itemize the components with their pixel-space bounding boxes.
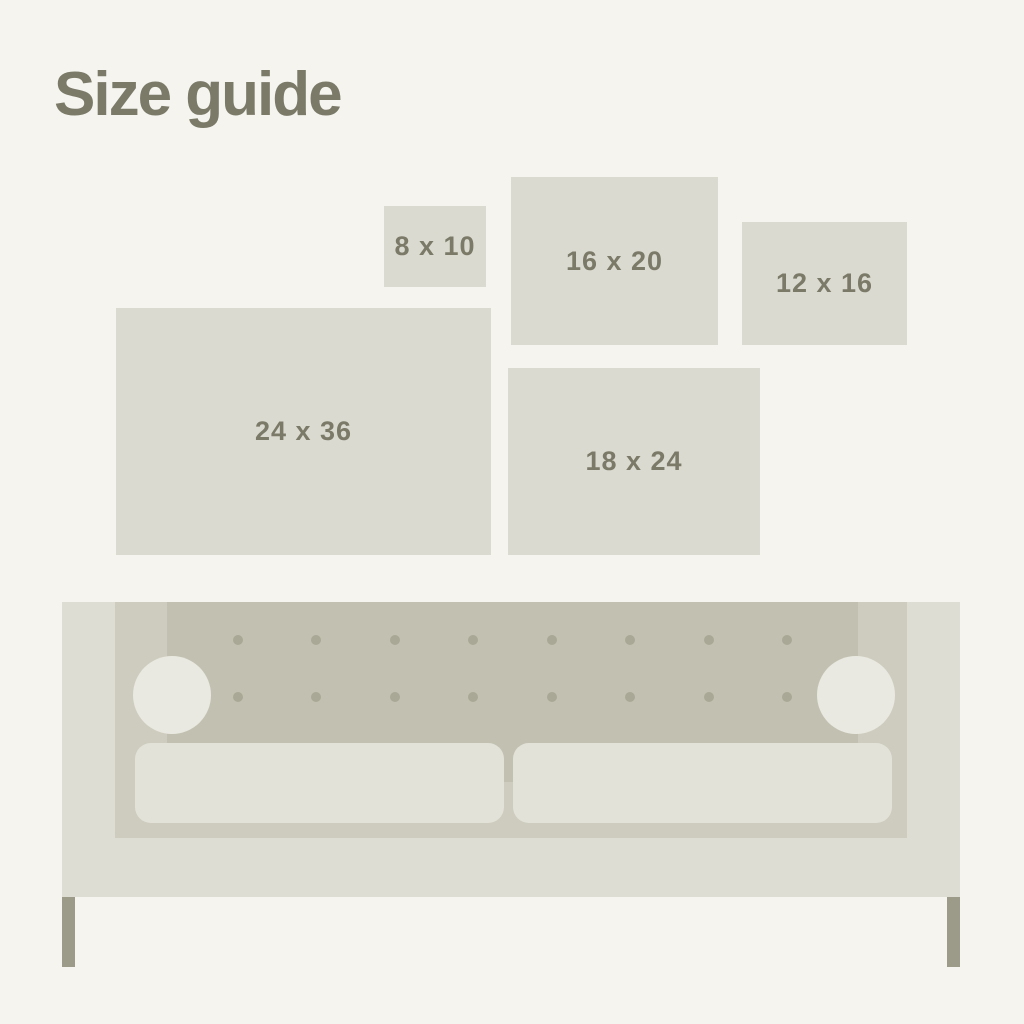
tufting-button-row <box>167 635 858 645</box>
tufting-button-dot <box>704 692 714 702</box>
tufting-button-dot <box>547 635 557 645</box>
tufting-button-dot <box>468 692 478 702</box>
sofa-leg-left <box>62 897 75 967</box>
sofa-seat-cushion-right <box>513 743 892 823</box>
sofa-bolster-pillow-right <box>817 656 895 734</box>
tufting-button-dot <box>233 635 243 645</box>
size-option-18x24: 18 x 24 <box>508 368 760 555</box>
size-label: 18 x 24 <box>585 446 682 477</box>
sofa-seat-cushion-left <box>135 743 504 823</box>
size-label: 8 x 10 <box>394 231 475 262</box>
size-label: 16 x 20 <box>566 246 663 277</box>
tufting-button-dot <box>390 692 400 702</box>
tufting-button-dot <box>625 692 635 702</box>
tufting-button-dot <box>311 635 321 645</box>
tufting-button-dot <box>625 635 635 645</box>
tufting-button-dot <box>547 692 557 702</box>
page-title: Size guide <box>54 62 341 127</box>
sofa-illustration <box>62 602 960 967</box>
size-option-8x10: 8 x 10 <box>384 206 486 287</box>
tufting-button-dot <box>782 635 792 645</box>
size-label: 24 x 36 <box>255 416 352 447</box>
tufting-button-dot <box>468 635 478 645</box>
tufting-button-dot <box>390 635 400 645</box>
size-label: 12 x 16 <box>776 268 873 299</box>
size-option-16x20: 16 x 20 <box>511 177 718 345</box>
size-option-12x16: 12 x 16 <box>742 222 907 345</box>
tufting-button-dot <box>311 692 321 702</box>
size-option-24x36: 24 x 36 <box>116 308 491 555</box>
sofa-leg-right <box>947 897 960 967</box>
tufting-button-dot <box>704 635 714 645</box>
size-guide-canvas: Size guide 8 x 1016 x 2012 x 1624 x 3618… <box>0 0 1024 1024</box>
sofa-bolster-pillow-left <box>133 656 211 734</box>
tufting-button-dot <box>782 692 792 702</box>
tufting-button-row <box>167 692 858 702</box>
tufting-button-dot <box>233 692 243 702</box>
